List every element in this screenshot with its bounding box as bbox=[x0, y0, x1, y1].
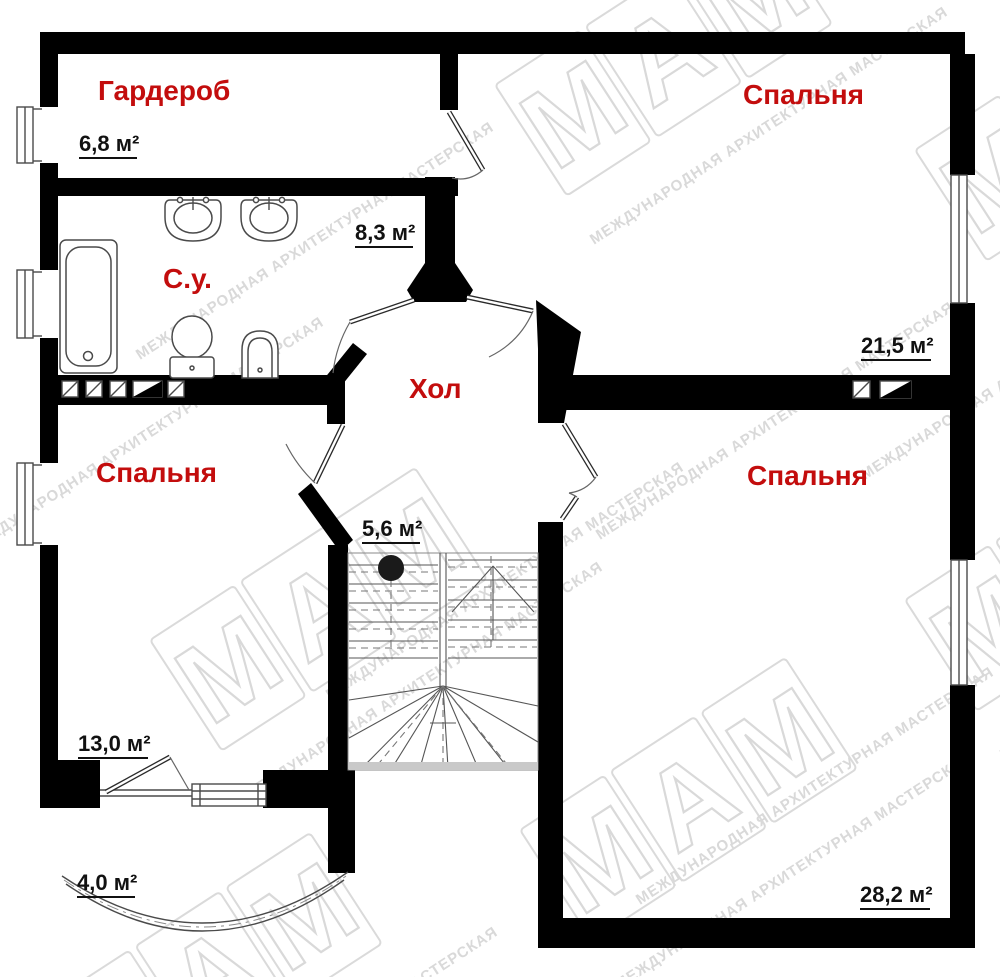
room-area-bedroom-top: 21,5 м² bbox=[861, 333, 934, 358]
door-bedroom-top bbox=[467, 297, 533, 357]
door-balcony bbox=[100, 757, 192, 796]
room-label-bedroom-left: Спальня bbox=[96, 457, 217, 488]
window bbox=[951, 560, 967, 685]
window bbox=[17, 270, 42, 338]
door-bedroom-right-double bbox=[562, 424, 596, 519]
room-area-bedroom-left: 13,0 м² bbox=[78, 731, 151, 756]
window bbox=[17, 107, 42, 163]
floor-plan: М А М МЕЖДУНАРОДНАЯ АРХИТЕКТУРНАЯ МАСТЕР… bbox=[0, 0, 1000, 977]
bidet-icon bbox=[242, 331, 278, 378]
room-label-bedroom-top: Спальня bbox=[743, 79, 864, 110]
room-area-balcony: 4,0 м² bbox=[77, 870, 137, 895]
door-bedroom-left bbox=[286, 425, 343, 483]
room-label-wardrobe: Гардероб bbox=[98, 75, 230, 106]
window bbox=[951, 175, 967, 303]
bathtub-icon bbox=[60, 240, 117, 373]
stair-landing bbox=[349, 762, 538, 770]
room-area-wardrobe: 6,8 м² bbox=[79, 131, 139, 156]
stair-post-icon bbox=[378, 555, 404, 581]
toilet-icon bbox=[170, 316, 214, 378]
room-label-hall: Хол bbox=[409, 373, 462, 404]
room-label-bedroom-right: Спальня bbox=[747, 460, 868, 491]
room-area-bathroom: 8,3 м² bbox=[355, 220, 415, 245]
room-area-hall: 5,6 м² bbox=[362, 516, 422, 541]
room-area-bedroom-right: 28,2 м² bbox=[860, 882, 933, 907]
floor-plan-canvas: М А М МЕЖДУНАРОДНАЯ АРХИТЕКТУРНАЯ МАСТЕР… bbox=[0, 0, 1000, 977]
room-label-bathroom: С.у. bbox=[163, 263, 212, 294]
balcony-window bbox=[192, 784, 266, 806]
